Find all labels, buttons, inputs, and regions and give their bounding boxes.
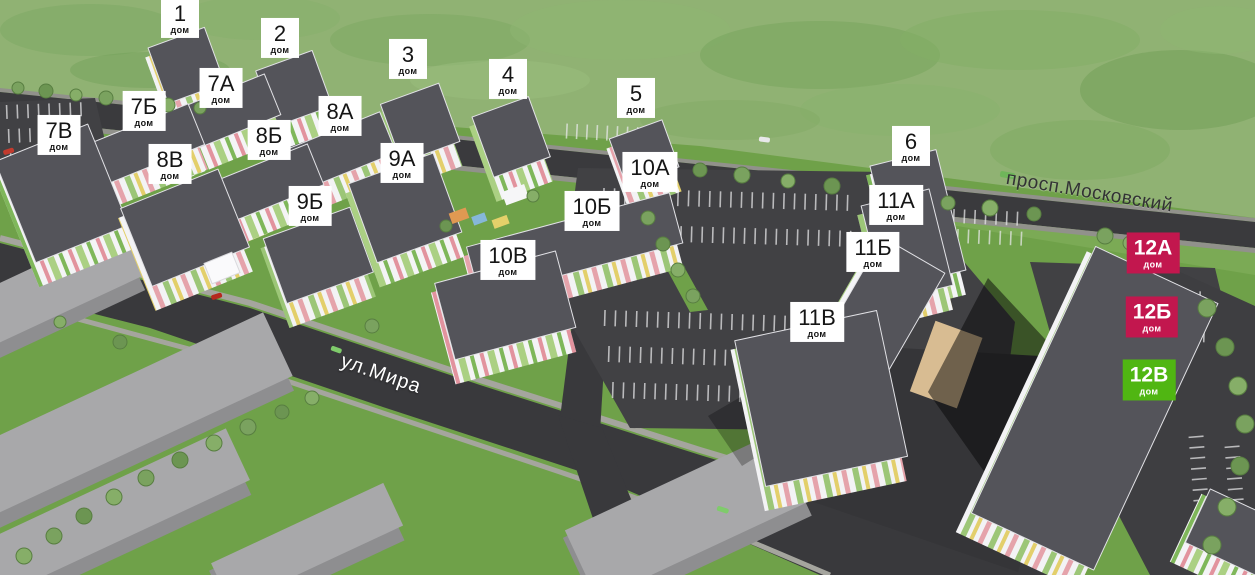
building-label-11a[interactable]: 11Адом bbox=[869, 185, 923, 225]
building-label-11v[interactable]: 11Вдом bbox=[790, 302, 844, 342]
building-unit-word: дом bbox=[583, 219, 602, 228]
building-number: 8В bbox=[157, 148, 184, 171]
building-number: 2 bbox=[274, 22, 286, 45]
building-label-7a[interactable]: 7Адом bbox=[200, 68, 243, 108]
building-number: 5 bbox=[630, 82, 642, 105]
building-number: 7В bbox=[46, 119, 73, 142]
building-label-8b[interactable]: 8Бдом bbox=[248, 120, 291, 160]
building-label-12v[interactable]: 12Вдом bbox=[1123, 359, 1176, 400]
building-number: 4 bbox=[502, 63, 514, 86]
building-unit-word: дом bbox=[331, 124, 350, 133]
building-unit-word: дом bbox=[1140, 388, 1159, 397]
building-unit-word: дом bbox=[808, 330, 827, 339]
building-number: 9Б bbox=[297, 190, 324, 213]
building-number: 11Б bbox=[854, 236, 891, 259]
building-number: 6 bbox=[905, 130, 917, 153]
building-label-10b[interactable]: 10Бдом bbox=[565, 191, 620, 231]
building-unit-word: дом bbox=[161, 172, 180, 181]
building-label-7b[interactable]: 7Бдом bbox=[123, 91, 166, 131]
building-label-7v[interactable]: 7Вдом bbox=[38, 115, 81, 155]
building-number: 12А bbox=[1134, 237, 1173, 259]
building-number: 11А bbox=[877, 189, 915, 212]
building-unit-word: дом bbox=[902, 154, 921, 163]
building-label-3[interactable]: 3дом bbox=[389, 39, 427, 79]
building-unit-word: дом bbox=[393, 171, 412, 180]
building-label-1[interactable]: 1дом bbox=[161, 0, 199, 38]
building-number: 10Б bbox=[573, 195, 612, 218]
building-label-11b[interactable]: 11Бдом bbox=[846, 232, 899, 272]
building-unit-word: дом bbox=[499, 268, 518, 277]
building-label-12b[interactable]: 12Бдом bbox=[1126, 296, 1178, 337]
building-unit-word: дом bbox=[864, 260, 883, 269]
building-number: 7Б bbox=[131, 95, 158, 118]
building-unit-word: дом bbox=[641, 180, 660, 189]
building-unit-word: дом bbox=[1144, 261, 1163, 270]
building-label-5[interactable]: 5дом bbox=[617, 78, 655, 118]
building-number: 12Б bbox=[1133, 301, 1171, 323]
building-number: 11В bbox=[798, 306, 836, 329]
building-label-10v[interactable]: 10Вдом bbox=[480, 240, 535, 280]
building-number: 10А bbox=[630, 156, 669, 179]
building-unit-word: дом bbox=[171, 26, 190, 35]
building-unit-word: дом bbox=[271, 46, 290, 55]
building-label-12a[interactable]: 12Адом bbox=[1127, 232, 1180, 273]
building-unit-word: дом bbox=[1143, 325, 1162, 334]
building-unit-word: дом bbox=[627, 106, 646, 115]
building-unit-word: дом bbox=[887, 213, 906, 222]
masterplan-map: ул.Мира просп.Московский 1дом2дом3дом4до… bbox=[0, 0, 1255, 575]
building-label-10a[interactable]: 10Адом bbox=[622, 152, 677, 192]
building-unit-word: дом bbox=[135, 119, 154, 128]
building-label-2[interactable]: 2дом bbox=[261, 18, 299, 58]
building-unit-word: дом bbox=[212, 96, 231, 105]
building-unit-word: дом bbox=[301, 214, 320, 223]
building-unit-word: дом bbox=[499, 87, 518, 96]
building-label-4[interactable]: 4дом bbox=[489, 59, 527, 99]
building-unit-word: дом bbox=[50, 143, 69, 152]
building-number: 12В bbox=[1130, 364, 1169, 386]
building-label-8a[interactable]: 8Адом bbox=[319, 96, 362, 136]
building-unit-word: дом bbox=[260, 148, 279, 157]
building-label-6[interactable]: 6дом bbox=[892, 126, 930, 166]
building-number: 9А bbox=[389, 147, 416, 170]
building-number: 3 bbox=[402, 43, 414, 66]
building-label-8v[interactable]: 8Вдом bbox=[149, 144, 192, 184]
building-number: 1 bbox=[174, 2, 186, 25]
building-number: 10В bbox=[488, 244, 527, 267]
building-labels-layer: 1дом2дом3дом4дом5дом6дом7Адом7Бдом7Вдом8… bbox=[0, 0, 1255, 575]
building-number: 8А bbox=[327, 100, 354, 123]
building-number: 8Б bbox=[256, 124, 283, 147]
building-label-9a[interactable]: 9Адом bbox=[381, 143, 424, 183]
building-unit-word: дом bbox=[399, 67, 418, 76]
building-label-9b[interactable]: 9Бдом bbox=[289, 186, 332, 226]
building-number: 7А bbox=[208, 72, 235, 95]
